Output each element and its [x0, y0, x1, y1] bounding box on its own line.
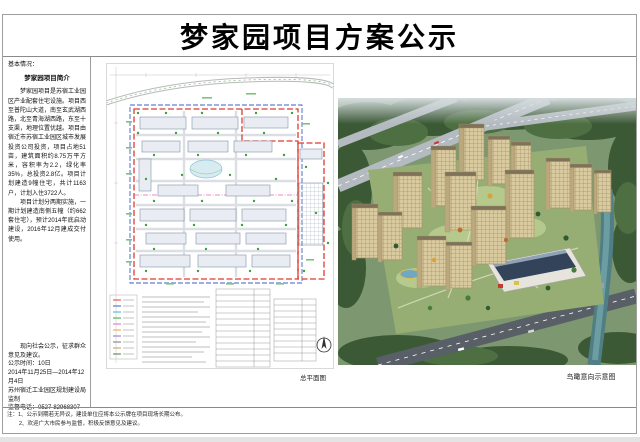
- footnote-1: 注：1、公示到期若无异议，建设单位应将本公示牌在项目现场长期公布。: [7, 411, 636, 420]
- intro-paragraph-1: 梦家园项目是苏宿工业园区产业配套住宅设施。项目西至普陀山大道，南至玄武湖西路，北…: [8, 88, 86, 198]
- intro-title: 梦家园项目简介: [8, 74, 86, 83]
- notice-duration: 公示时间：10日: [8, 360, 86, 369]
- notice-line: 现向社会公示，征求群众意见及建议。: [8, 343, 86, 361]
- project-info-panel: 基本情况： 梦家园项目简介 梦家园项目是苏宿工业园区产业配套住宅设施。项目西至普…: [3, 57, 91, 407]
- notice-board: 梦家园项目方案公示 基本情况： 梦家园项目简介 梦家园项目是苏宿工业园区产业配套…: [2, 14, 637, 434]
- aerial-rendering: [338, 98, 636, 365]
- site-plan-svg: [106, 63, 334, 369]
- notice-block: 现向社会公示，征求群众意见及建议。 公示时间：10日 2014年11月25日—2…: [8, 343, 86, 413]
- section-label: 基本情况：: [8, 61, 86, 70]
- footnote-2: 2、欢迎广大市民参与监督，积极反馈意见及建议。: [7, 420, 636, 429]
- board-bottom-edge: [0, 437, 640, 442]
- site-plan-caption: 总平面图: [283, 372, 343, 382]
- sky-haze: [338, 98, 636, 124]
- page-title: 梦家园项目方案公示: [180, 16, 459, 56]
- central-garden: [190, 160, 222, 178]
- commercial-block: [299, 183, 323, 245]
- notice-dates: 2014年11月25日—2014年12月4日: [8, 369, 86, 387]
- title-band: 梦家园项目方案公示: [3, 15, 636, 57]
- issuer: 苏州宿迁工业园区规划建设局监制: [8, 387, 86, 405]
- aerial-svg: [338, 98, 636, 365]
- intro-paragraph-2: 项目计划分两期实施，一期计划建造南侧五幢（约662套住宅），预计2014年底启动…: [8, 199, 86, 245]
- aerial-caption: 鸟瞰意向示意图: [533, 372, 640, 382]
- site-plan-drawing: [106, 63, 334, 369]
- footnotes: 注：1、公示到期若无异议，建设单位应将本公示牌在项目现场长期公布。 2、欢迎广大…: [3, 407, 636, 433]
